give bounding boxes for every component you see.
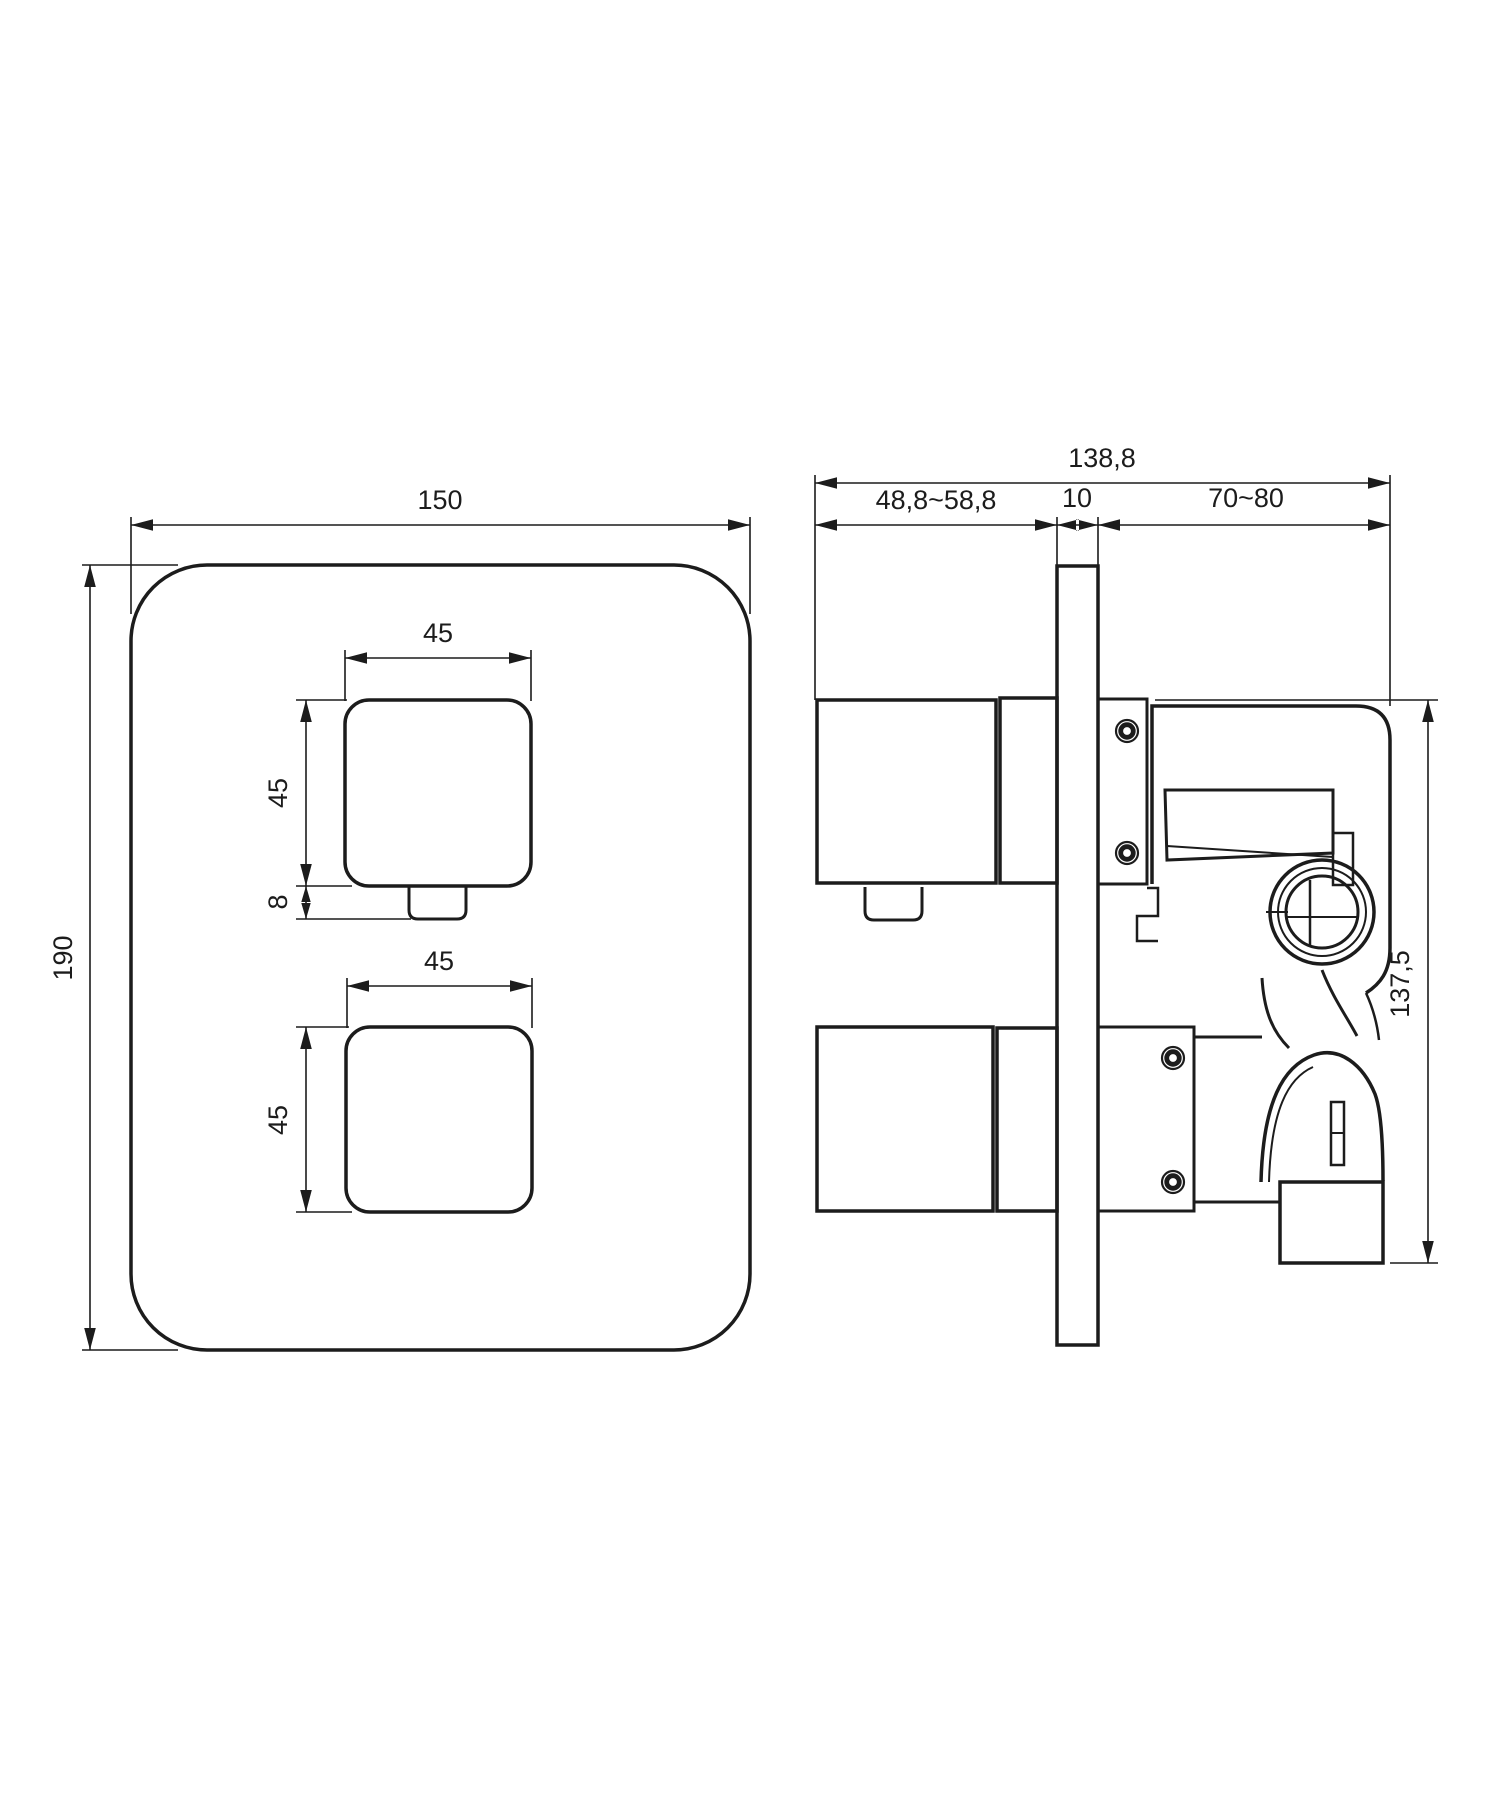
diverter-dome-inner-line	[1269, 1067, 1313, 1182]
dim-depth-breakdown: 48,8~58,8 10 70~80	[815, 483, 1390, 566]
screw-head	[1116, 720, 1138, 742]
dim-label-total-depth: 138,8	[1068, 443, 1136, 473]
wall-plate	[1057, 566, 1098, 1345]
diverter-dome	[1261, 1053, 1383, 1182]
port-axis-lines	[1266, 912, 1358, 917]
side-view: 138,8 48,8~58,8 10 70~80 137,5	[815, 443, 1438, 1345]
dim-plate-width: 150	[131, 485, 750, 614]
dim-label-plate-thickness: 10	[1062, 483, 1092, 513]
dim-label-rough-in-depth: 70~80	[1208, 483, 1284, 513]
body-neck-right	[1322, 970, 1357, 1036]
dim-label-tab-height: 8	[263, 894, 293, 909]
outlet-port-ring	[1266, 860, 1374, 964]
extension-lines	[296, 1027, 352, 1212]
screw-head	[1162, 1047, 1184, 1069]
dim-label-bottom-knob-width: 45	[424, 946, 454, 976]
bottom-knob	[346, 1027, 532, 1212]
top-knob-tab	[409, 886, 466, 919]
body-right-profile	[1366, 993, 1379, 1040]
dim-top-knob-width: 45	[345, 618, 531, 701]
dim-total-depth: 138,8	[815, 443, 1390, 706]
dim-label-body-height: 137,5	[1385, 950, 1415, 1018]
dim-plate-height: 190	[48, 565, 178, 1350]
dim-label-plate-height: 190	[48, 935, 78, 980]
diverter-slot	[1331, 1102, 1344, 1165]
top-knob-tab-profile	[865, 887, 922, 920]
dim-top-knob-tab: 8	[263, 886, 411, 919]
top-knob-collar	[1000, 698, 1057, 883]
valve-body-upper	[1152, 706, 1390, 993]
bottom-knob-profile	[817, 1027, 993, 1211]
top-knob-profile	[817, 700, 996, 883]
body-step-tabs	[1137, 888, 1158, 941]
dim-label-bottom-knob-height: 45	[263, 1105, 293, 1135]
dim-body-height: 137,5	[1155, 700, 1438, 1263]
dim-label-plate-width: 150	[417, 485, 462, 515]
shower-mixer-dimension-drawing: 150 190 45 45 8	[0, 0, 1500, 1796]
dim-label-top-knob-height: 45	[263, 778, 293, 808]
body-neck-left	[1262, 978, 1289, 1048]
dim-bottom-knob-height: 45	[263, 1027, 352, 1212]
dim-label-top-knob-width: 45	[423, 618, 453, 648]
technical-drawing-canvas: 150 190 45 45 8	[0, 0, 1500, 1796]
bottom-knob-collar	[997, 1028, 1057, 1211]
bottom-outlet-pipe	[1280, 1182, 1383, 1263]
screw-head	[1116, 842, 1138, 864]
dim-bottom-knob-width: 45	[347, 946, 532, 1028]
screw-head	[1162, 1171, 1184, 1193]
top-knob	[345, 700, 531, 886]
front-view: 150 190 45 45 8	[48, 485, 750, 1350]
dim-top-knob-height: 45	[263, 700, 352, 886]
cartridge-block	[1165, 790, 1333, 860]
dim-label-trim-depth: 48,8~58,8	[876, 485, 997, 515]
